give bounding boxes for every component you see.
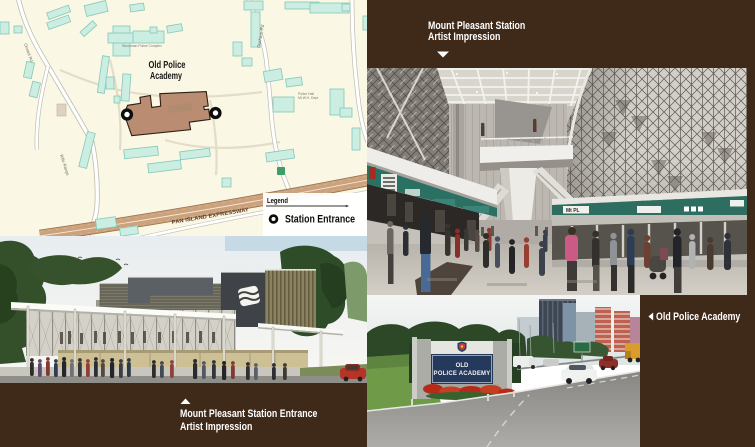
svg-text:POLICE ACADEMY: POLICE ACADEMY <box>434 371 491 377</box>
svg-text:Mt PL: Mt PL <box>566 208 580 214</box>
svg-text:Woodman Police Complex: Woodman Police Complex <box>122 44 162 48</box>
svg-text:OLD: OLD <box>456 363 469 369</box>
svg-text:Station Entrance: Station Entrance <box>285 214 355 226</box>
svg-text:Legend: Legend <box>267 196 288 205</box>
svg-text:Mt W.H. Dept: Mt W.H. Dept <box>298 96 318 100</box>
svg-text:Academy: Academy <box>150 70 182 82</box>
